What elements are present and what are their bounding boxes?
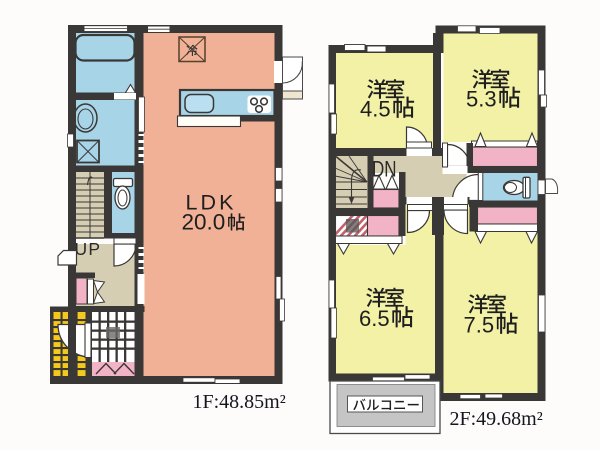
svg-text:1F:48.85m²: 1F:48.85m² <box>193 391 286 413</box>
svg-text:UP: UP <box>75 239 102 259</box>
svg-text:6.5: 6.5 <box>359 306 390 331</box>
svg-text:5.3: 5.3 <box>466 87 497 112</box>
svg-text:20.0: 20.0 <box>182 210 226 235</box>
svg-text:7.5: 7.5 <box>464 313 495 338</box>
svg-text:2F:49.68m²: 2F:49.68m² <box>450 408 543 430</box>
svg-text:4.5: 4.5 <box>360 97 391 122</box>
